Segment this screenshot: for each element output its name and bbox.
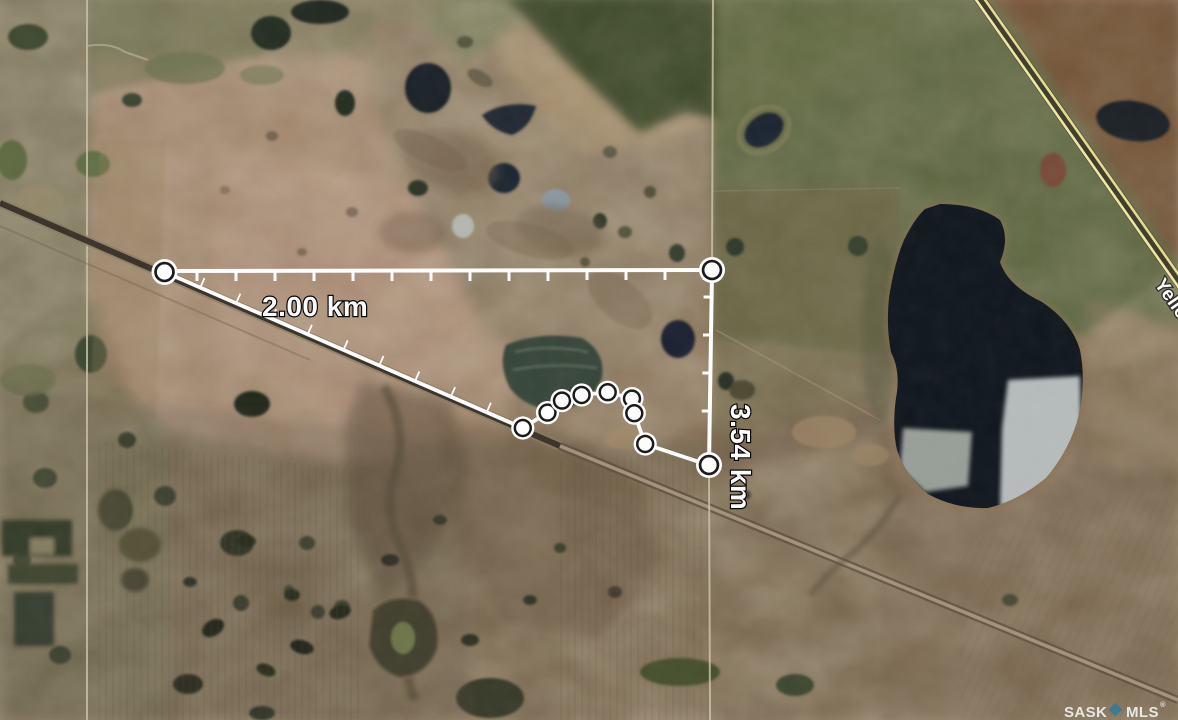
svg-text:MLS: MLS xyxy=(1126,704,1159,720)
svg-text:®: ® xyxy=(1160,700,1166,709)
svg-text:SASK: SASK xyxy=(1064,704,1107,720)
